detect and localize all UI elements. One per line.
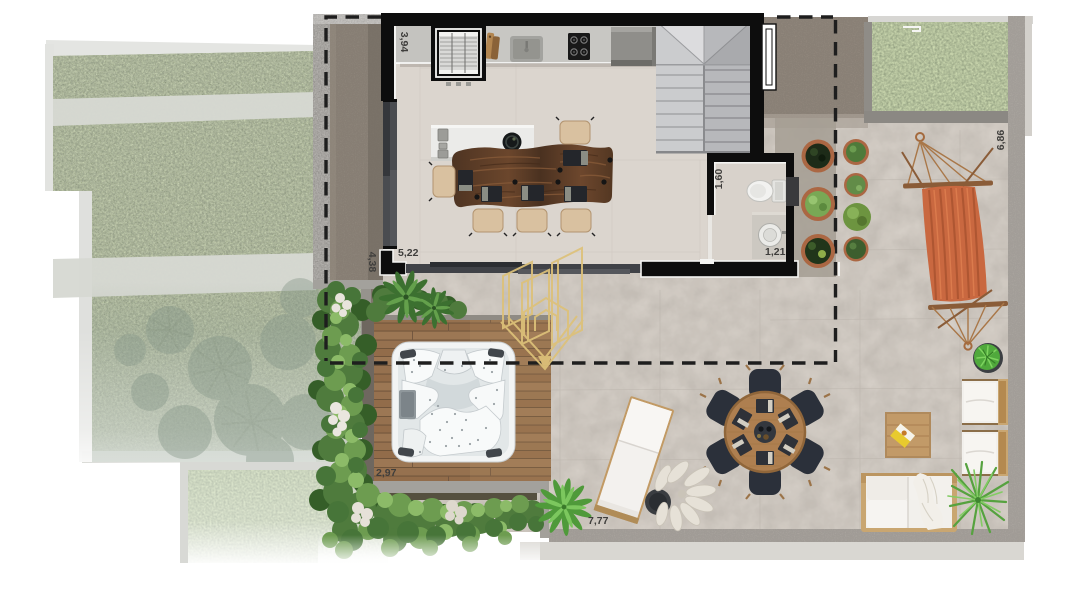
svg-text:5,22: 5,22 bbox=[398, 247, 419, 259]
svg-text:4,38: 4,38 bbox=[366, 252, 378, 273]
svg-text:6,86: 6,86 bbox=[995, 130, 1007, 151]
svg-text:2,97: 2,97 bbox=[376, 467, 397, 479]
svg-text:1,21: 1,21 bbox=[765, 246, 786, 258]
svg-text:3,94: 3,94 bbox=[398, 32, 410, 53]
svg-text:1,60: 1,60 bbox=[713, 169, 725, 190]
svg-text:7,77: 7,77 bbox=[588, 515, 609, 527]
